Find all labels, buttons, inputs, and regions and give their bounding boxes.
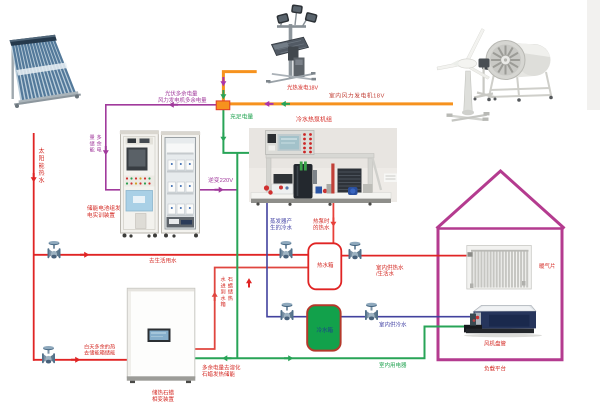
svg-text:室内供冷水: 室内供冷水 [379, 321, 407, 329]
svg-text:风机盘管: 风机盘管 [484, 340, 507, 348]
svg-text:储热石蜡: 储热石蜡 [152, 389, 175, 397]
svg-text:室内供热水: 室内供热水 [376, 263, 404, 271]
svg-text:光伏多余电量: 光伏多余电量 [165, 90, 198, 98]
svg-text:热泵时: 热泵时 [313, 217, 330, 225]
svg-text:充足电量: 充足电量 [230, 113, 253, 121]
svg-text:电实训装置: 电实训装置 [87, 211, 115, 219]
svg-text:冷水热泵机组: 冷水热泵机组 [296, 116, 332, 124]
svg-text:暖气片: 暖气片 [539, 262, 556, 270]
svg-text:逆变220V: 逆变220V [208, 176, 233, 184]
svg-text:室内风力发电机18V: 室内风力发电机18V [329, 92, 385, 100]
svg-text:/生活水: /生活水 [376, 270, 395, 278]
svg-text:多余电量储能: 多余电量储能 [90, 133, 103, 154]
svg-text:光热发电18V: 光热发电18V [287, 84, 319, 92]
svg-text:冷水箱: 冷水箱 [317, 326, 334, 334]
svg-text:相变装置: 相变装置 [152, 395, 175, 403]
svg-text:的热水: 的热水 [313, 224, 330, 232]
svg-text:蒸发器产: 蒸发器产 [270, 217, 293, 225]
svg-text:去生活用水: 去生活用水 [149, 257, 177, 265]
svg-text:风力发电机多余电量: 风力发电机多余电量 [158, 96, 207, 104]
svg-text:室内用电器: 室内用电器 [379, 361, 407, 369]
svg-text:热水箱: 热水箱 [317, 261, 334, 269]
svg-text:生的冷水: 生的冷水 [270, 224, 293, 232]
svg-text:太阳能热水: 太阳能热水 [39, 147, 45, 185]
svg-text:负载平台: 负载平台 [484, 365, 507, 373]
svg-text:储能电池组发: 储能电池组发 [87, 204, 121, 212]
svg-text:白天多余的热: 白天多余的热 [84, 343, 116, 351]
svg-text:去储能箱储能: 去储能箱储能 [84, 349, 115, 357]
svg-text:石蜡发热储能: 石蜡发热储能 [202, 370, 236, 378]
svg-text:多余电量去溶化: 多余电量去溶化 [202, 364, 241, 372]
